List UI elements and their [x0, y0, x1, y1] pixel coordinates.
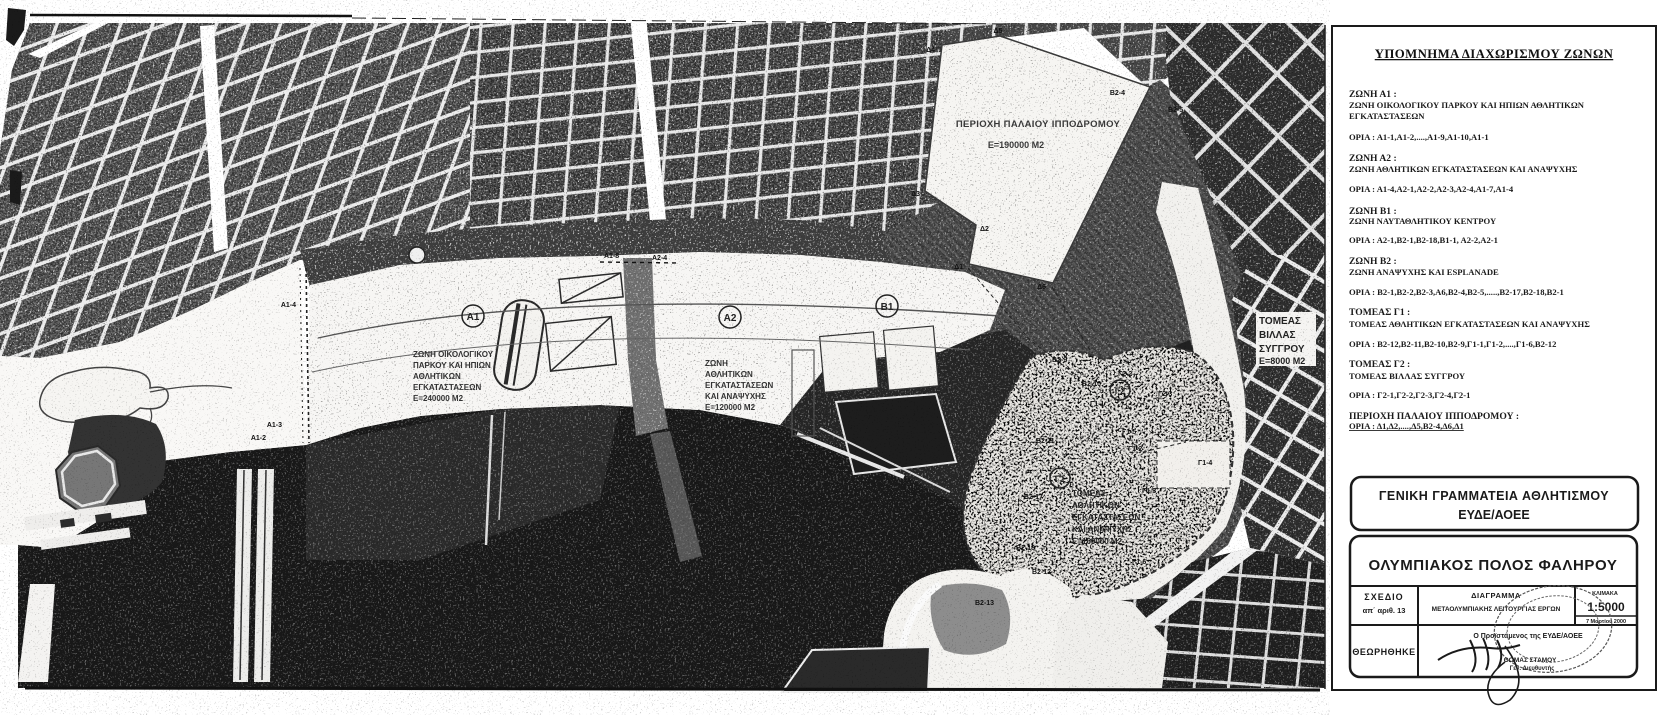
svg-text:ΟΡΙΑ : Α2-1,Β2-1,Β2-18,Β1-1, Α: ΟΡΙΑ : Α2-1,Β2-1,Β2-18,Β1-1, Α2-2,Α2-1 [1349, 235, 1498, 245]
svg-text:ΓΕΝΙΚΗ ΓΡΑΜΜΑΤΕΙΑ ΑΘΛΗΤΙΣΜ: ΓΕΝΙΚΗ ΓΡΑΜΜΑΤΕΙΑ ΑΘΛΗΤΙΣΜΟΥ [1379, 489, 1609, 503]
svg-text:ΖΩΝΗ ΟΙΚΟΛΟΓΙΚΟΥ ΠΑΡΚΟΥ ΚΑΙ ΗΠ: ΖΩΝΗ ΟΙΚΟΛΟΓΙΚΟΥ ΠΑΡΚΟΥ ΚΑΙ ΗΠΙΩΝ ΑΘΛΗΤΙ… [1349, 100, 1585, 110]
svg-text:ΕΓΚΑΤΑΣΤΑΣΕΩΝ: ΕΓΚΑΤΑΣΤΑΣΕΩΝ [1349, 111, 1425, 121]
svg-text:ΖΩΝΗ ΑΝΑΨΥΧΗΣ ΚΑΙ ESPLANADE: ΖΩΝΗ ΑΝΑΨΥΧΗΣ ΚΑΙ ESPLANADE [1349, 267, 1499, 277]
svg-text:ΟΡΙΑ : Α1-4,Α2-1,Α2-2,Α2-3,Α2-: ΟΡΙΑ : Α1-4,Α2-1,Α2-2,Α2-3,Α2-4,Α1-7,Α1-… [1349, 184, 1514, 194]
svg-text:Ο Προϊστάμενος της ΕΥΔΕ/ΑΟΕΕ: Ο Προϊστάμενος της ΕΥΔΕ/ΑΟΕΕ [1473, 633, 1583, 640]
svg-text:ΜΕΤΑΟΛΥΜΠΙΑΚΗΣ ΛΕΙΤΟΥΡΓΙΑΣ Ε: ΜΕΤΑΟΛΥΜΠΙΑΚΗΣ ΛΕΙΤΟΥΡΓΙΑΣ ΕΡΓΩΝ [1432, 606, 1561, 613]
svg-text:ΖΩΝΗ Α1 :: ΖΩΝΗ Α1 : [1349, 89, 1397, 100]
svg-text:ΤΟΜΕΑΣ ΑΘΛΗΤΙΚΩΝ ΕΓΚΑΤΑΣΤΑΣΕΩ: ΤΟΜΕΑΣ ΑΘΛΗΤΙΚΩΝ ΕΓΚΑΤΑΣΤΑΣΕΩΝ ΚΑΙ ΑΝΑΨΥ… [1349, 319, 1590, 329]
svg-text:7 Μαρτίου 2000: 7 Μαρτίου 2000 [1586, 619, 1626, 625]
svg-text:ΤΟΜΕΑΣ Γ1 :: ΤΟΜΕΑΣ Γ1 : [1349, 307, 1410, 318]
svg-text:ΟΡΙΑ : Δ1,Δ2,....,Δ5,Β2-4,Δ6,: ΟΡΙΑ : Δ1,Δ2,....,Δ5,Β2-4,Δ6,Δ1 [1349, 421, 1464, 431]
svg-text:ΖΩΝΗ ΑΘΛΗΤΙΚΩΝ ΕΓΚΑΤΑΣΤΑΣΕΩΝ Κ: ΖΩΝΗ ΑΘΛΗΤΙΚΩΝ ΕΓΚΑΤΑΣΤΑΣΕΩΝ ΚΑΙ ΑΝΑΨΥΧΗ… [1349, 164, 1578, 174]
svg-text:ΖΩΝΗ Α2 :: ΖΩΝΗ Α2 : [1349, 153, 1397, 164]
svg-text:ΟΡΙΑ : Β2-12,Β2-11,Β2-10,Β2-9: ΟΡΙΑ : Β2-12,Β2-11,Β2-10,Β2-9,Γ1-1,Γ1-2,… [1349, 339, 1556, 349]
svg-text:ΘΩΜΑΣ ΣΤΑΜΟΥ: ΘΩΜΑΣ ΣΤΑΜΟΥ [1504, 657, 1557, 664]
svg-text:ΤΟΜΕΑΣ ΒΙΛΛΑΣ ΣΥΓΓΡΟΥ: ΤΟΜΕΑΣ ΒΙΛΛΑΣ ΣΥΓΓΡΟΥ [1349, 371, 1466, 381]
svg-text:απ΄ αριθ. 13: απ΄ αριθ. 13 [1363, 606, 1406, 615]
svg-text:ΤΟΜΕΑΣ Γ2 :: ΤΟΜΕΑΣ Γ2 : [1349, 359, 1410, 370]
svg-text:ΔΙΑΓΡΑΜΜΑ: ΔΙΑΓΡΑΜΜΑ [1471, 591, 1521, 600]
svg-text:ΚΛΙΜΑΚΑ: ΚΛΙΜΑΚΑ [1592, 591, 1618, 597]
svg-text:ΟΡΙΑ : Β2-1,Β2-2,Β2-3,Α6,Β2-4: ΟΡΙΑ : Β2-1,Β2-2,Β2-3,Α6,Β2-4,Β2-5,.....… [1349, 287, 1564, 297]
svg-text:ΘΕΩΡΗΘΗΚΕ: ΘΕΩΡΗΘΗΚΕ [1352, 647, 1415, 657]
svg-text:ΟΡΙΑ : Γ2-1,Γ2-2,Γ2-3,Γ2-4,Γ2: ΟΡΙΑ : Γ2-1,Γ2-2,Γ2-3,Γ2-4,Γ2-1 [1349, 390, 1470, 400]
svg-text:ΟΡΙΑ : Α1-1,Α1-2,....,Α1-9,Α1-: ΟΡΙΑ : Α1-1,Α1-2,....,Α1-9,Α1-10,Α1-1 [1349, 132, 1489, 142]
svg-text:ΖΩΝΗ Β2 :: ΖΩΝΗ Β2 : [1349, 256, 1397, 267]
svg-text:ΖΩΝΗ ΝΑΥΤΑΘΛΗΤΙΚΟΥ ΚΕΝΤΡΟΥ: ΖΩΝΗ ΝΑΥΤΑΘΛΗΤΙΚΟΥ ΚΕΝΤΡΟΥ [1349, 216, 1497, 226]
svg-text:ΕΥΔΕ/ΑΟΕΕ: ΕΥΔΕ/ΑΟΕΕ [1458, 508, 1529, 522]
svg-text:ΟΛΥΜΠΙΑΚΟΣ ΠΟΛΟΣ ΦΑΛΗΡΟΥ: ΟΛΥΜΠΙΑΚΟΣ ΠΟΛΟΣ ΦΑΛΗΡΟΥ [1369, 557, 1618, 574]
svg-text:ΣΧΕΔΙΟ: ΣΧΕΔΙΟ [1364, 592, 1403, 602]
svg-text:ΥΠΟΜΝΗΜΑ ΔΙΑΧΩΡΙΣΜΟΥ ΖΩΝΩΝ: ΥΠΟΜΝΗΜΑ ΔΙΑΧΩΡΙΣΜΟΥ ΖΩΝΩΝ [1375, 47, 1614, 61]
